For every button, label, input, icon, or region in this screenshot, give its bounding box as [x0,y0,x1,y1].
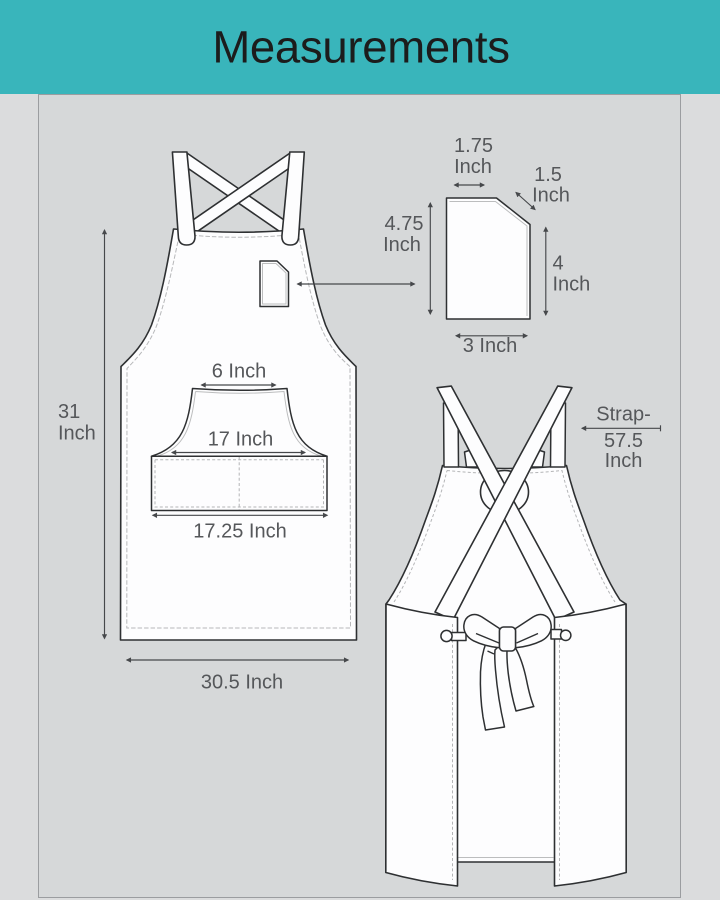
svg-text:17 Inch: 17 Inch [208,429,274,451]
svg-text:17.25 Inch: 17.25 Inch [193,521,286,543]
svg-text:Inch: Inch [605,450,643,472]
svg-text:4: 4 [553,253,564,275]
svg-text:31: 31 [58,401,80,423]
svg-text:Measurements: Measurements [212,22,509,73]
svg-text:Inch: Inch [58,423,96,445]
svg-text:3 Inch: 3 Inch [463,335,517,357]
svg-text:Strap-: Strap- [596,404,650,426]
svg-text:57.5: 57.5 [604,430,643,452]
svg-text:1.5: 1.5 [534,164,562,186]
svg-text:Inch: Inch [454,156,492,178]
svg-text:4.75: 4.75 [385,213,424,235]
svg-text:Inch: Inch [532,185,570,207]
svg-text:6 Inch: 6 Inch [212,361,266,383]
svg-text:Inch: Inch [553,274,591,296]
svg-text:1.75: 1.75 [454,135,493,157]
svg-text:Inch: Inch [383,234,421,256]
svg-text:30.5 Inch: 30.5 Inch [201,672,283,694]
